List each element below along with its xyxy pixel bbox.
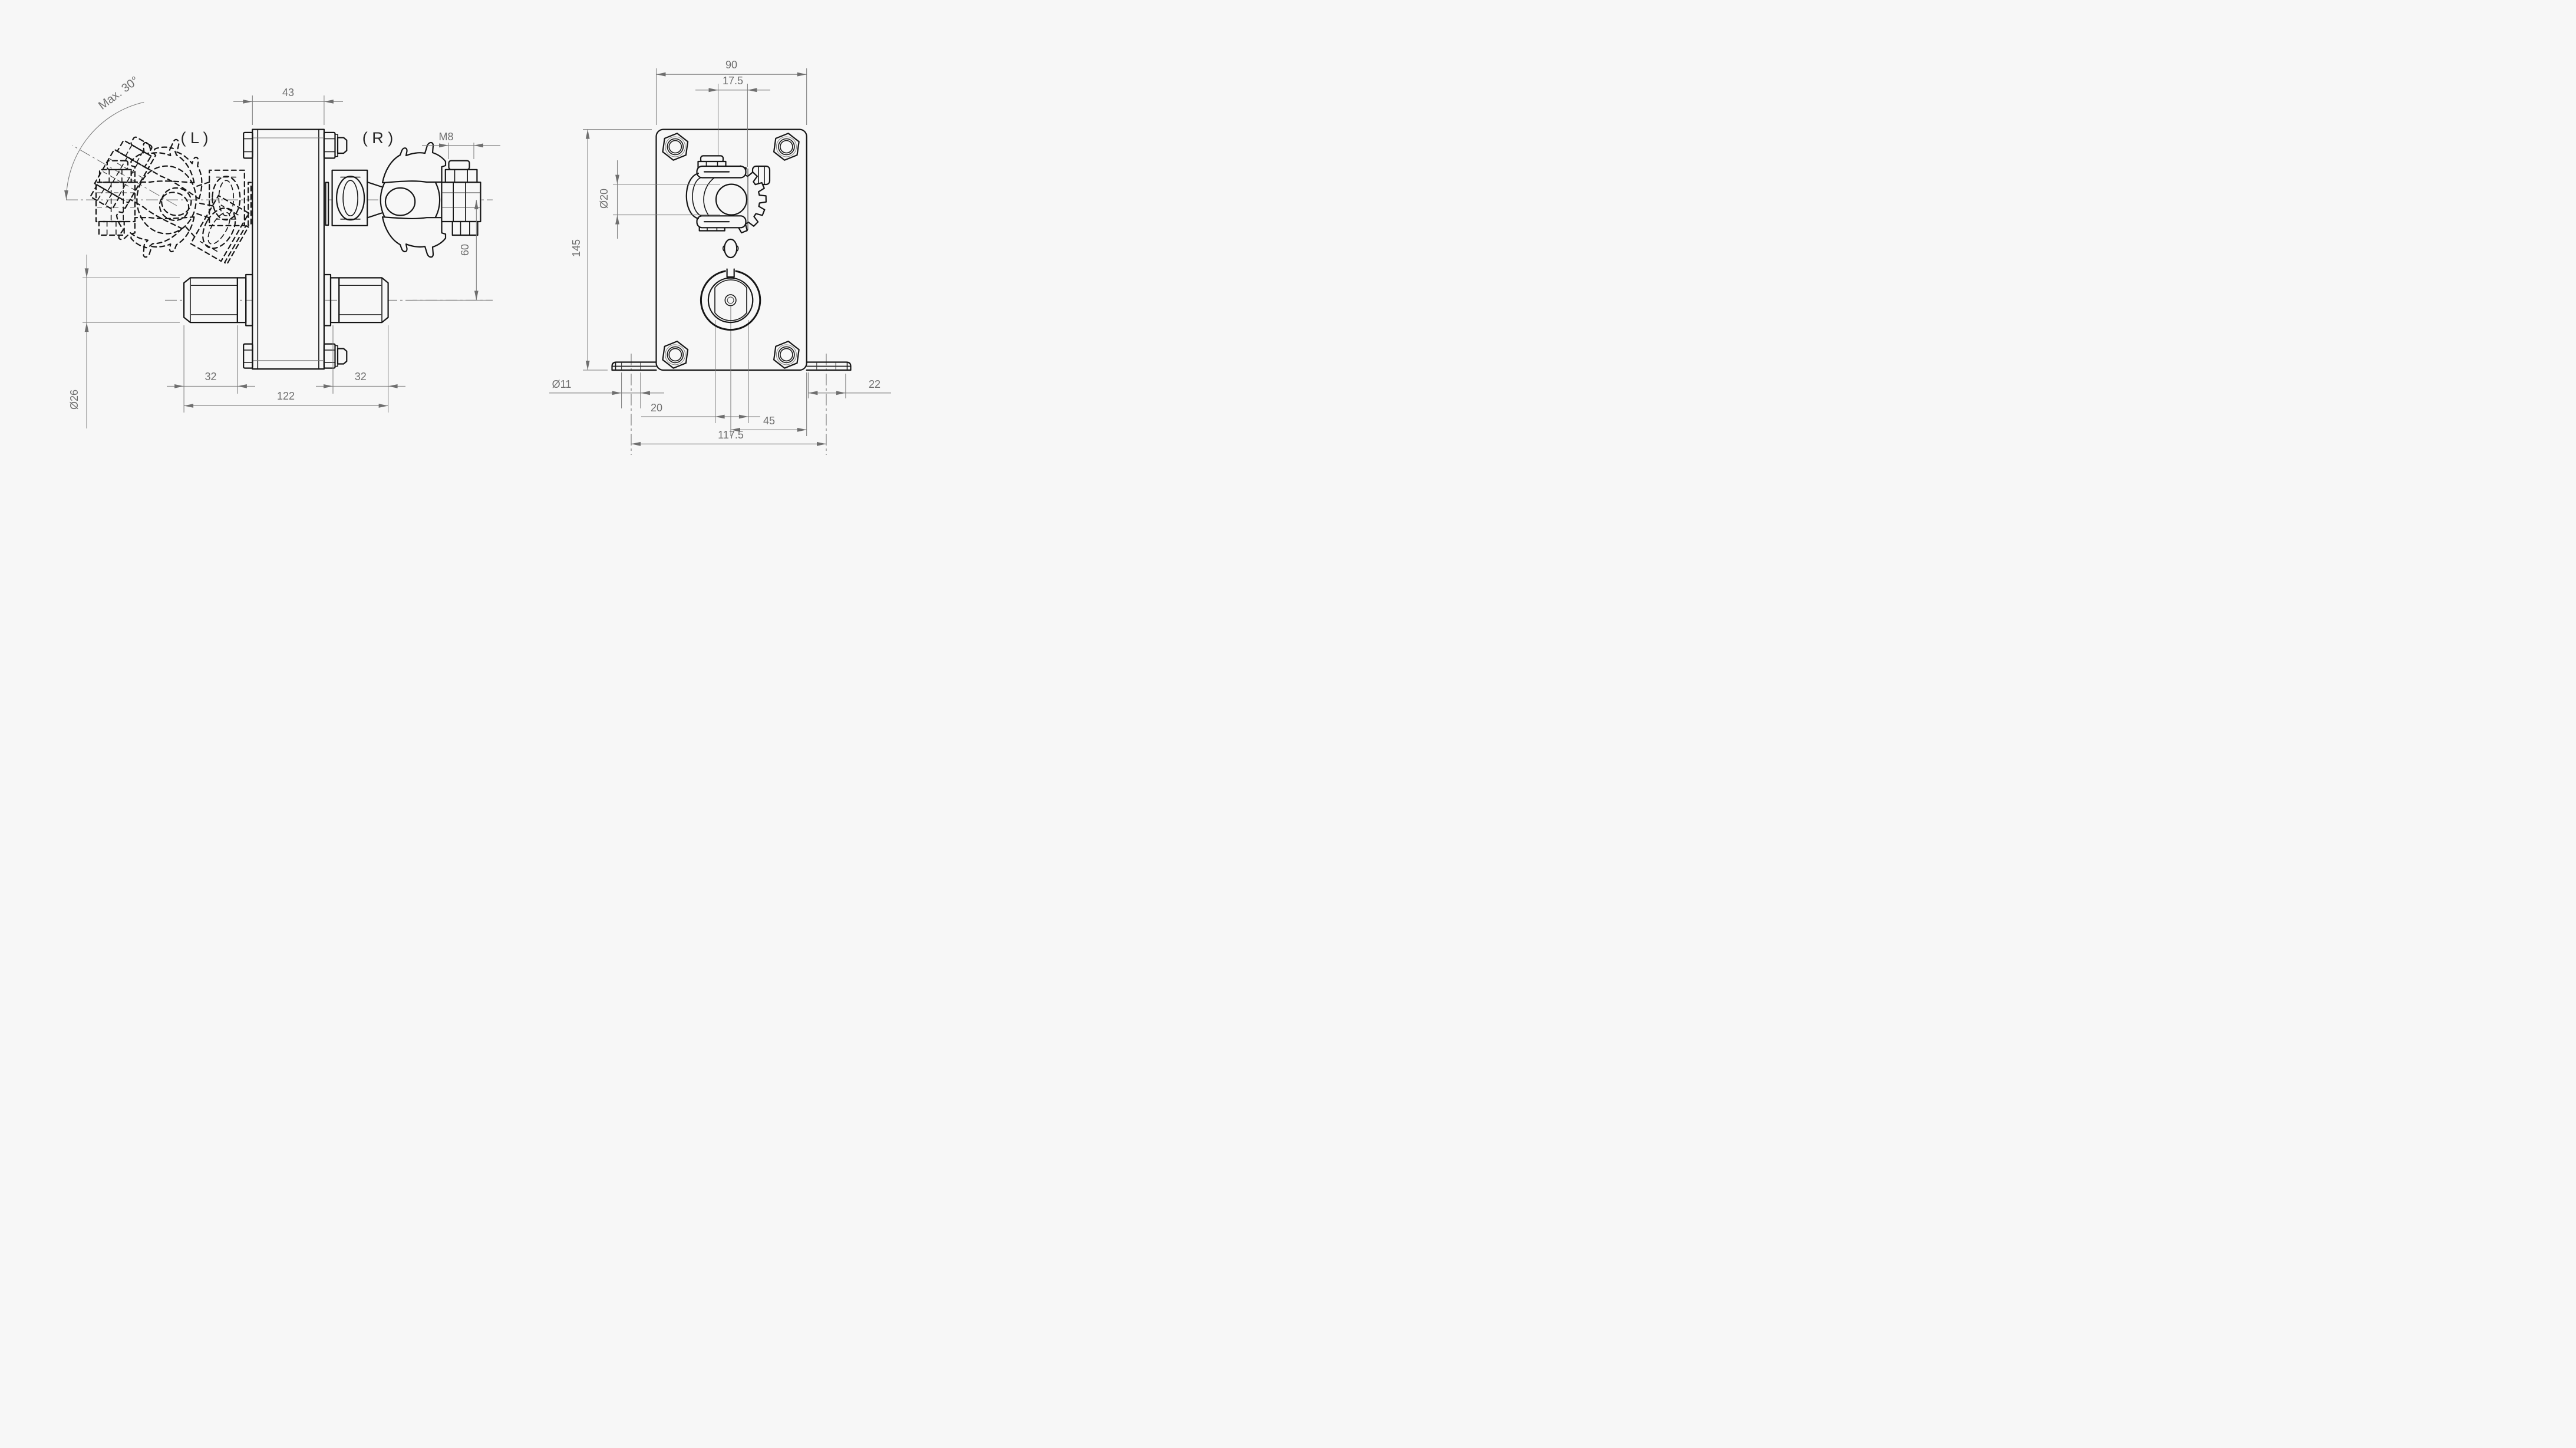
- svg-text:60: 60: [459, 244, 471, 256]
- dim-plate-height-145: 145: [570, 130, 652, 370]
- svg-text:Ø26: Ø26: [68, 390, 80, 410]
- clamp-right-side: [326, 143, 481, 257]
- svg-text:122: 122: [277, 390, 295, 402]
- side-view: Max. 30°: [64, 74, 500, 428]
- bracket-plate-side: [252, 130, 324, 369]
- svg-text:45: 45: [763, 415, 775, 427]
- front-view: 90 17.5 Ø20 145: [549, 59, 891, 455]
- svg-text:22: 22: [869, 378, 880, 390]
- dim-tube-left-32: 32: [167, 325, 255, 413]
- left-marker: ( L ): [181, 129, 209, 147]
- svg-text:43: 43: [282, 87, 294, 98]
- max-angle-label: Max. 30°: [96, 74, 141, 113]
- dim-center-to-edge-45: 45: [731, 372, 807, 436]
- svg-text:M8: M8: [438, 131, 453, 143]
- dim-socket-flats-20: 20: [641, 402, 760, 418]
- svg-text:117.5: 117.5: [718, 429, 744, 441]
- max-angle-dimension: Max. 30°: [64, 74, 144, 200]
- svg-text:90: 90: [725, 59, 737, 71]
- technical-drawing: Max. 30°: [0, 0, 924, 519]
- dim-plate-width-43: 43: [233, 87, 343, 125]
- dim-hole-spacing-117-5: 117.5: [631, 429, 826, 446]
- dim-plate-width-90: 90: [657, 59, 807, 125]
- svg-text:145: 145: [570, 239, 582, 257]
- bracket-plate-front: [657, 130, 807, 370]
- svg-text:32: 32: [355, 371, 367, 382]
- svg-text:20: 20: [651, 402, 662, 414]
- dim-clamp-offset-17-5: 17.5: [695, 75, 770, 92]
- svg-text:Ø20: Ø20: [598, 189, 610, 209]
- dim-hole-diameter-11: Ø11: [549, 372, 664, 408]
- dim-overall-width-122: 122: [184, 390, 388, 408]
- right-marker: ( R ): [362, 129, 393, 147]
- drawing-canvas: Max. 30°: [0, 0, 924, 519]
- dim-edge-to-end-22: 22: [808, 372, 891, 398]
- dim-tube-right-32: 32: [316, 325, 405, 413]
- svg-text:17.5: 17.5: [723, 75, 743, 87]
- svg-text:Ø11: Ø11: [552, 378, 572, 390]
- svg-text:32: 32: [205, 371, 216, 382]
- dim-tube-diameter-26: Ø26: [68, 255, 180, 428]
